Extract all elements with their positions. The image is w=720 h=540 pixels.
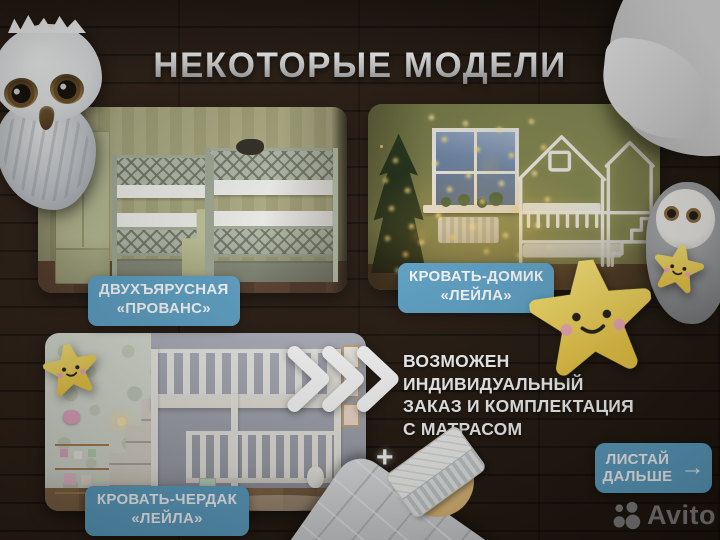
arrow-right-icon: → [680,456,704,480]
smiling-star-toy-large [525,254,659,384]
model-variant: «ЛЕЙЛА» [96,510,238,529]
smiling-star-toy-small [649,240,708,297]
model-name: КРОВАТЬ-ЧЕРДАК [96,491,238,510]
ad-canvas: НЕКОТОРЫЕ МОДЕЛИ [0,0,720,540]
mattress-graphic: + [390,437,490,527]
avito-brand-text: Avito [647,500,716,531]
avito-logo-icon [611,500,642,531]
model-variant: «ПРОВАНС» [99,300,229,319]
plus-icon: + [376,441,394,475]
model-label-loft-bed: КРОВАТЬ-ЧЕРДАК «ЛЕЙЛА» [85,486,249,536]
white-owl-plush [0,20,112,212]
model-label-provence: ДВУХЪЯРУСНАЯ «ПРОВАНС» [88,276,240,326]
model-variant: «ЛЕЙЛА» [409,287,543,306]
model-name: КРОВАТЬ-ДОМИК [409,268,543,287]
model-name: ДВУХЪЯРУСНАЯ [99,281,229,300]
triple-chevron-right-icon [284,342,402,416]
avito-watermark: Avito [611,500,716,531]
smiling-star-toy-small [40,340,102,401]
note-line: ЗАКАЗ И КОМПЛЕКТАЦИЯ [403,395,634,418]
next-slide-button[interactable]: ЛИСТАЙ ДАЛЬШЕ → [595,443,712,493]
next-button-label: ЛИСТАЙ ДАЛЬШЕ [603,451,673,485]
